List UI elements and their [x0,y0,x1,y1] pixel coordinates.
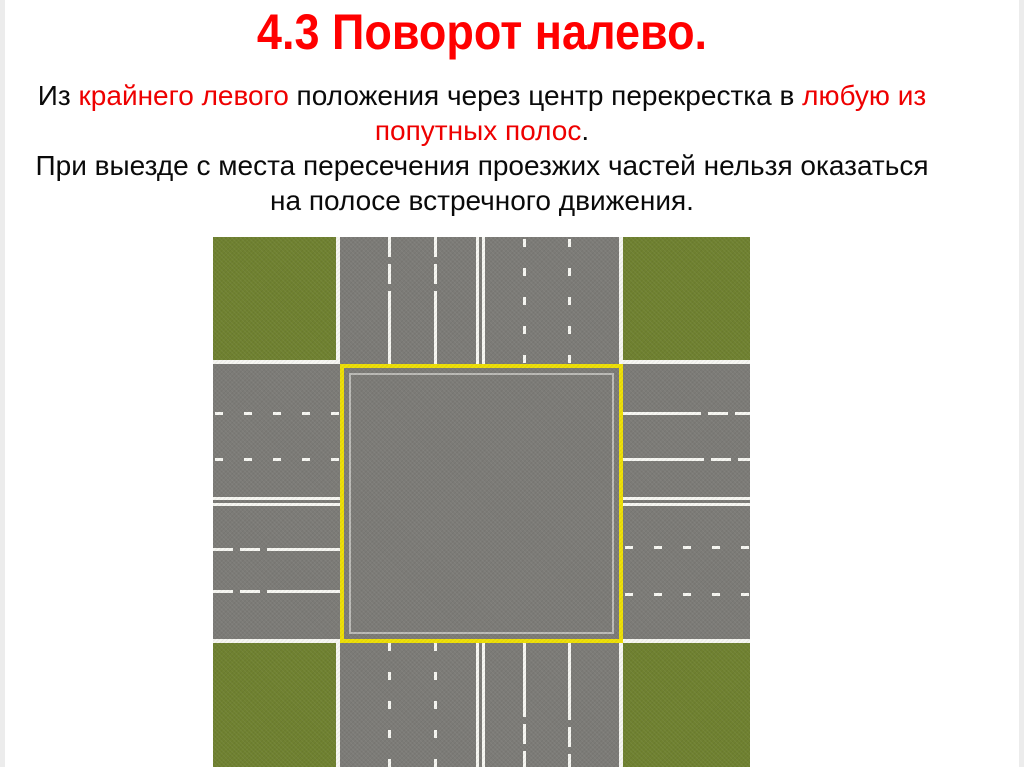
lane-line [213,548,275,551]
text-line: Из крайнего левого положения через центр… [5,78,959,113]
lane-line [388,643,391,767]
plain-text: на полосе встречного движения. [270,185,694,216]
grass-corner-top-left [213,237,340,364]
lane-line [568,239,571,364]
lane-line [623,458,684,461]
center-double-line [482,237,485,364]
lane-line [275,548,340,551]
center-double-line [482,639,485,767]
plain-text: Из [38,80,79,111]
lane-line [388,237,391,295]
slide-body-text: Из крайнего левого положения через центр… [5,78,959,218]
center-double-line [213,503,340,506]
text-line: на полосе встречного движения. [5,183,959,218]
lane-line [215,458,340,461]
plain-text: . [581,115,589,146]
slide: { "slide": { "title": "4.3 Поворот налев… [0,0,1024,767]
lane-line [684,458,750,461]
grass-corner-top-right [619,237,750,364]
lane-line [568,700,571,767]
slide-edge-right [1019,0,1024,767]
plain-text: положения через центр перекрестка в [289,80,802,111]
lane-line [625,546,750,549]
lane-line [681,412,750,415]
lane-line [434,643,437,767]
highlighted-text: крайнего левого [79,80,289,111]
lane-line [434,237,437,301]
lane-line [625,593,750,596]
highlighted-text: попутных полос [375,115,581,146]
plain-text: При выезде с места пересечения проезжих … [36,150,929,181]
grass-corner-bottom-right [619,639,750,767]
lane-line [523,639,526,697]
intersection-outline [340,364,623,643]
lane-line [568,639,571,700]
lane-line [623,412,681,415]
slide-title: 4.3 Поворот налево. [53,4,912,60]
lane-line [388,295,391,364]
center-double-line [213,497,340,500]
text-line: попутных полос. [5,113,959,148]
grass-corner-bottom-left [213,639,340,767]
highlighted-text: любую из [802,80,926,111]
lane-line [523,697,526,767]
lane-line [434,301,437,364]
center-double-line [476,639,479,767]
lane-line [213,590,279,593]
lane-line [215,412,340,415]
center-double-line [623,503,750,506]
center-double-line [623,497,750,500]
text-line: При выезде с места пересечения проезжих … [5,148,959,183]
intersection-photo [213,237,750,767]
lane-line [279,590,340,593]
lane-line [523,239,526,364]
center-double-line [476,237,479,364]
